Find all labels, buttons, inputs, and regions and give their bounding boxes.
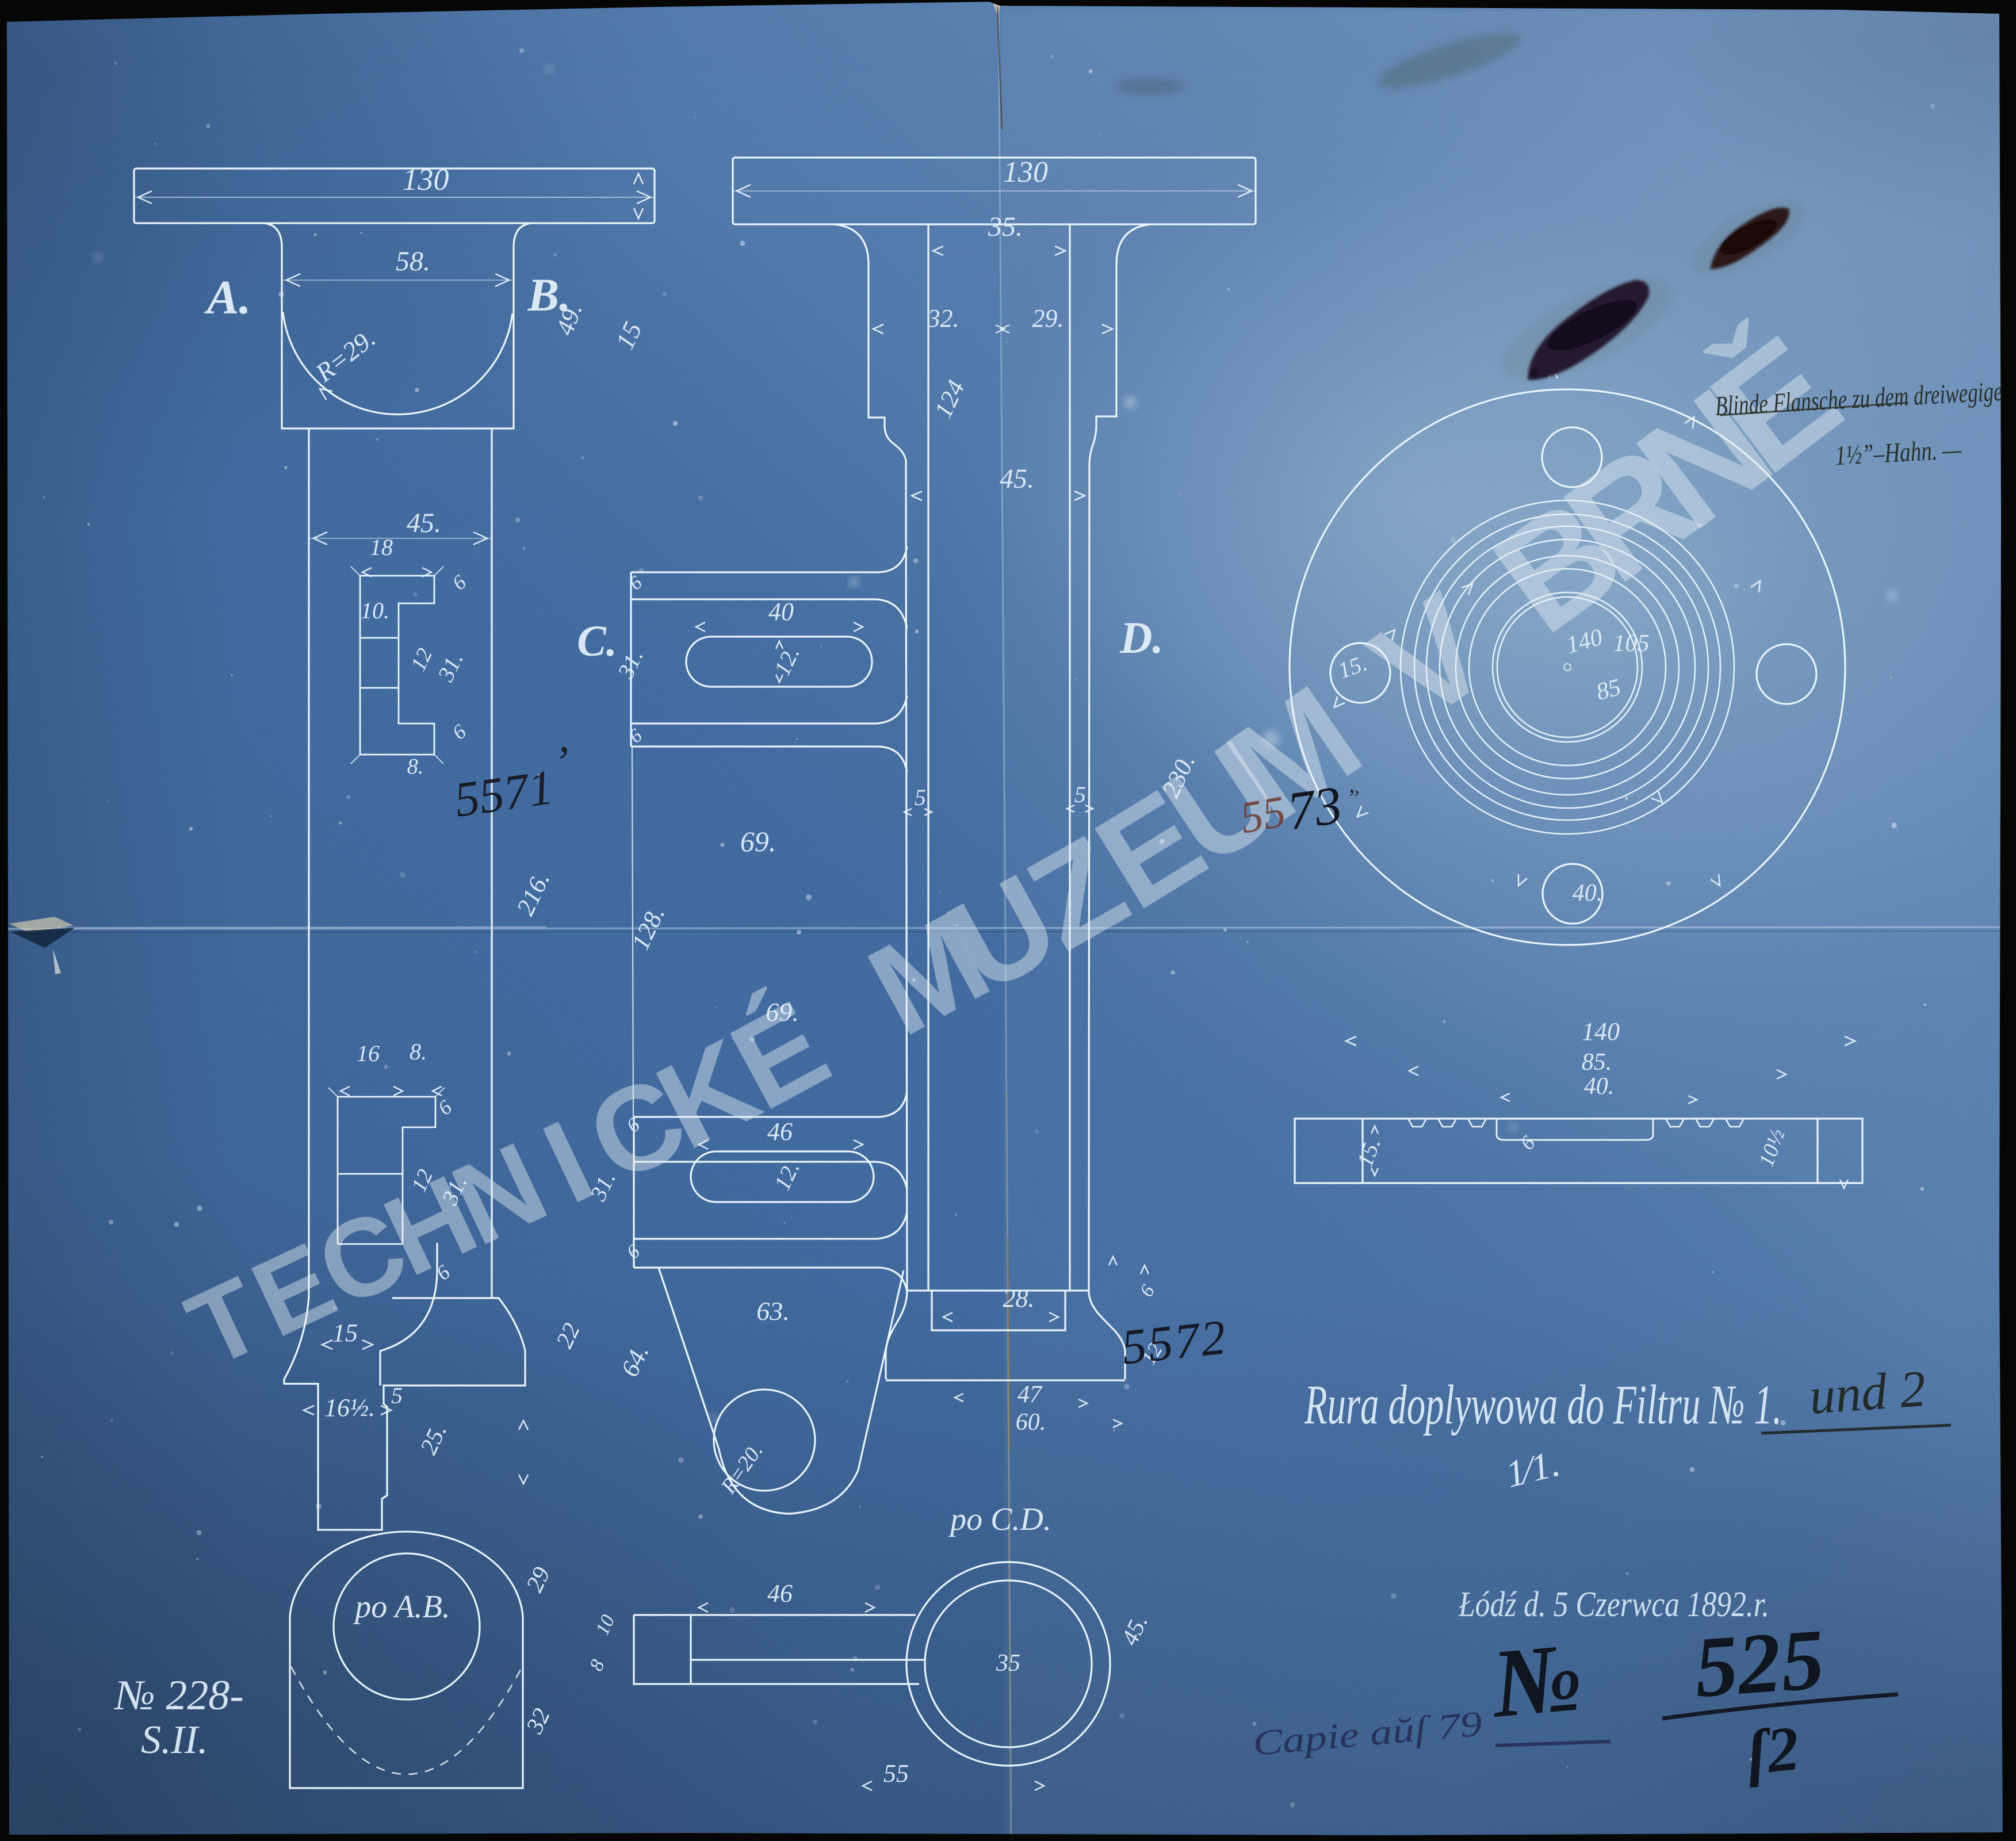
svg-text:Rura doplywowa do Filtru № 1.: Rura doplywowa do Filtru № 1. — [1304, 1374, 1782, 1436]
svg-text:45.: 45. — [1000, 464, 1034, 494]
svg-text:40: 40 — [768, 598, 794, 626]
svg-text:46: 46 — [767, 1579, 793, 1607]
svg-text:32.: 32. — [927, 304, 959, 332]
svg-text:8.: 8. — [407, 755, 424, 779]
svg-text:ſ2: ſ2 — [1743, 1713, 1803, 1788]
svg-text:105: 105 — [1613, 630, 1650, 657]
svg-text:58.: 58. — [396, 246, 430, 277]
svg-text:№: № — [1486, 1622, 1586, 1738]
svg-text:40.: 40. — [1584, 1073, 1615, 1100]
svg-text:60.: 60. — [1016, 1409, 1046, 1436]
svg-text:47: 47 — [1017, 1381, 1043, 1408]
svg-text:35: 35 — [996, 1650, 1020, 1677]
svg-text:45.: 45. — [407, 508, 441, 538]
svg-text:5: 5 — [391, 1383, 403, 1409]
svg-text:Łódź d. 5 Czerwca 1892.r.: Łódź d. 5 Czerwca 1892.r. — [1458, 1585, 1769, 1624]
svg-text:16: 16 — [357, 1040, 380, 1066]
svg-text:55: 55 — [1236, 786, 1289, 843]
svg-text:10.: 10. — [361, 598, 389, 623]
svg-text:130: 130 — [1003, 156, 1048, 189]
svg-text:63.: 63. — [756, 1296, 790, 1326]
svg-text:C.: C. — [577, 617, 617, 665]
svg-text:’: ’ — [553, 737, 569, 788]
svg-text:№ 228-: № 228- — [113, 1672, 244, 1719]
svg-text:16½.: 16½. — [324, 1394, 375, 1422]
svg-text:D.: D. — [1119, 613, 1164, 663]
svg-text:130: 130 — [403, 162, 449, 197]
svg-text:35.: 35. — [988, 212, 1023, 242]
svg-text:S.II.: S.II. — [141, 1718, 208, 1762]
svg-text:po C.D.: po C.D. — [948, 1502, 1051, 1537]
svg-text:40.: 40. — [1573, 880, 1603, 906]
svg-text:18: 18 — [370, 534, 393, 560]
svg-text:A.: A. — [204, 271, 251, 324]
svg-text:po A.B.: po A.B. — [353, 1589, 450, 1625]
svg-text:73: 73 — [1284, 775, 1346, 841]
svg-text:28.: 28. — [1003, 1284, 1035, 1312]
svg-text:29.: 29. — [1032, 304, 1064, 332]
svg-text:und 2: und 2 — [1807, 1360, 1927, 1425]
svg-text:8.: 8. — [410, 1039, 427, 1065]
svg-text:”: ” — [1346, 784, 1360, 812]
svg-text:69.: 69. — [740, 825, 776, 858]
svg-text:55: 55 — [883, 1759, 909, 1788]
svg-text:85.: 85. — [1582, 1049, 1612, 1075]
svg-text:5: 5 — [915, 784, 926, 810]
svg-text:B.: B. — [527, 269, 571, 321]
svg-text:5572: 5572 — [1119, 1309, 1230, 1375]
svg-text:140: 140 — [1582, 1017, 1620, 1046]
